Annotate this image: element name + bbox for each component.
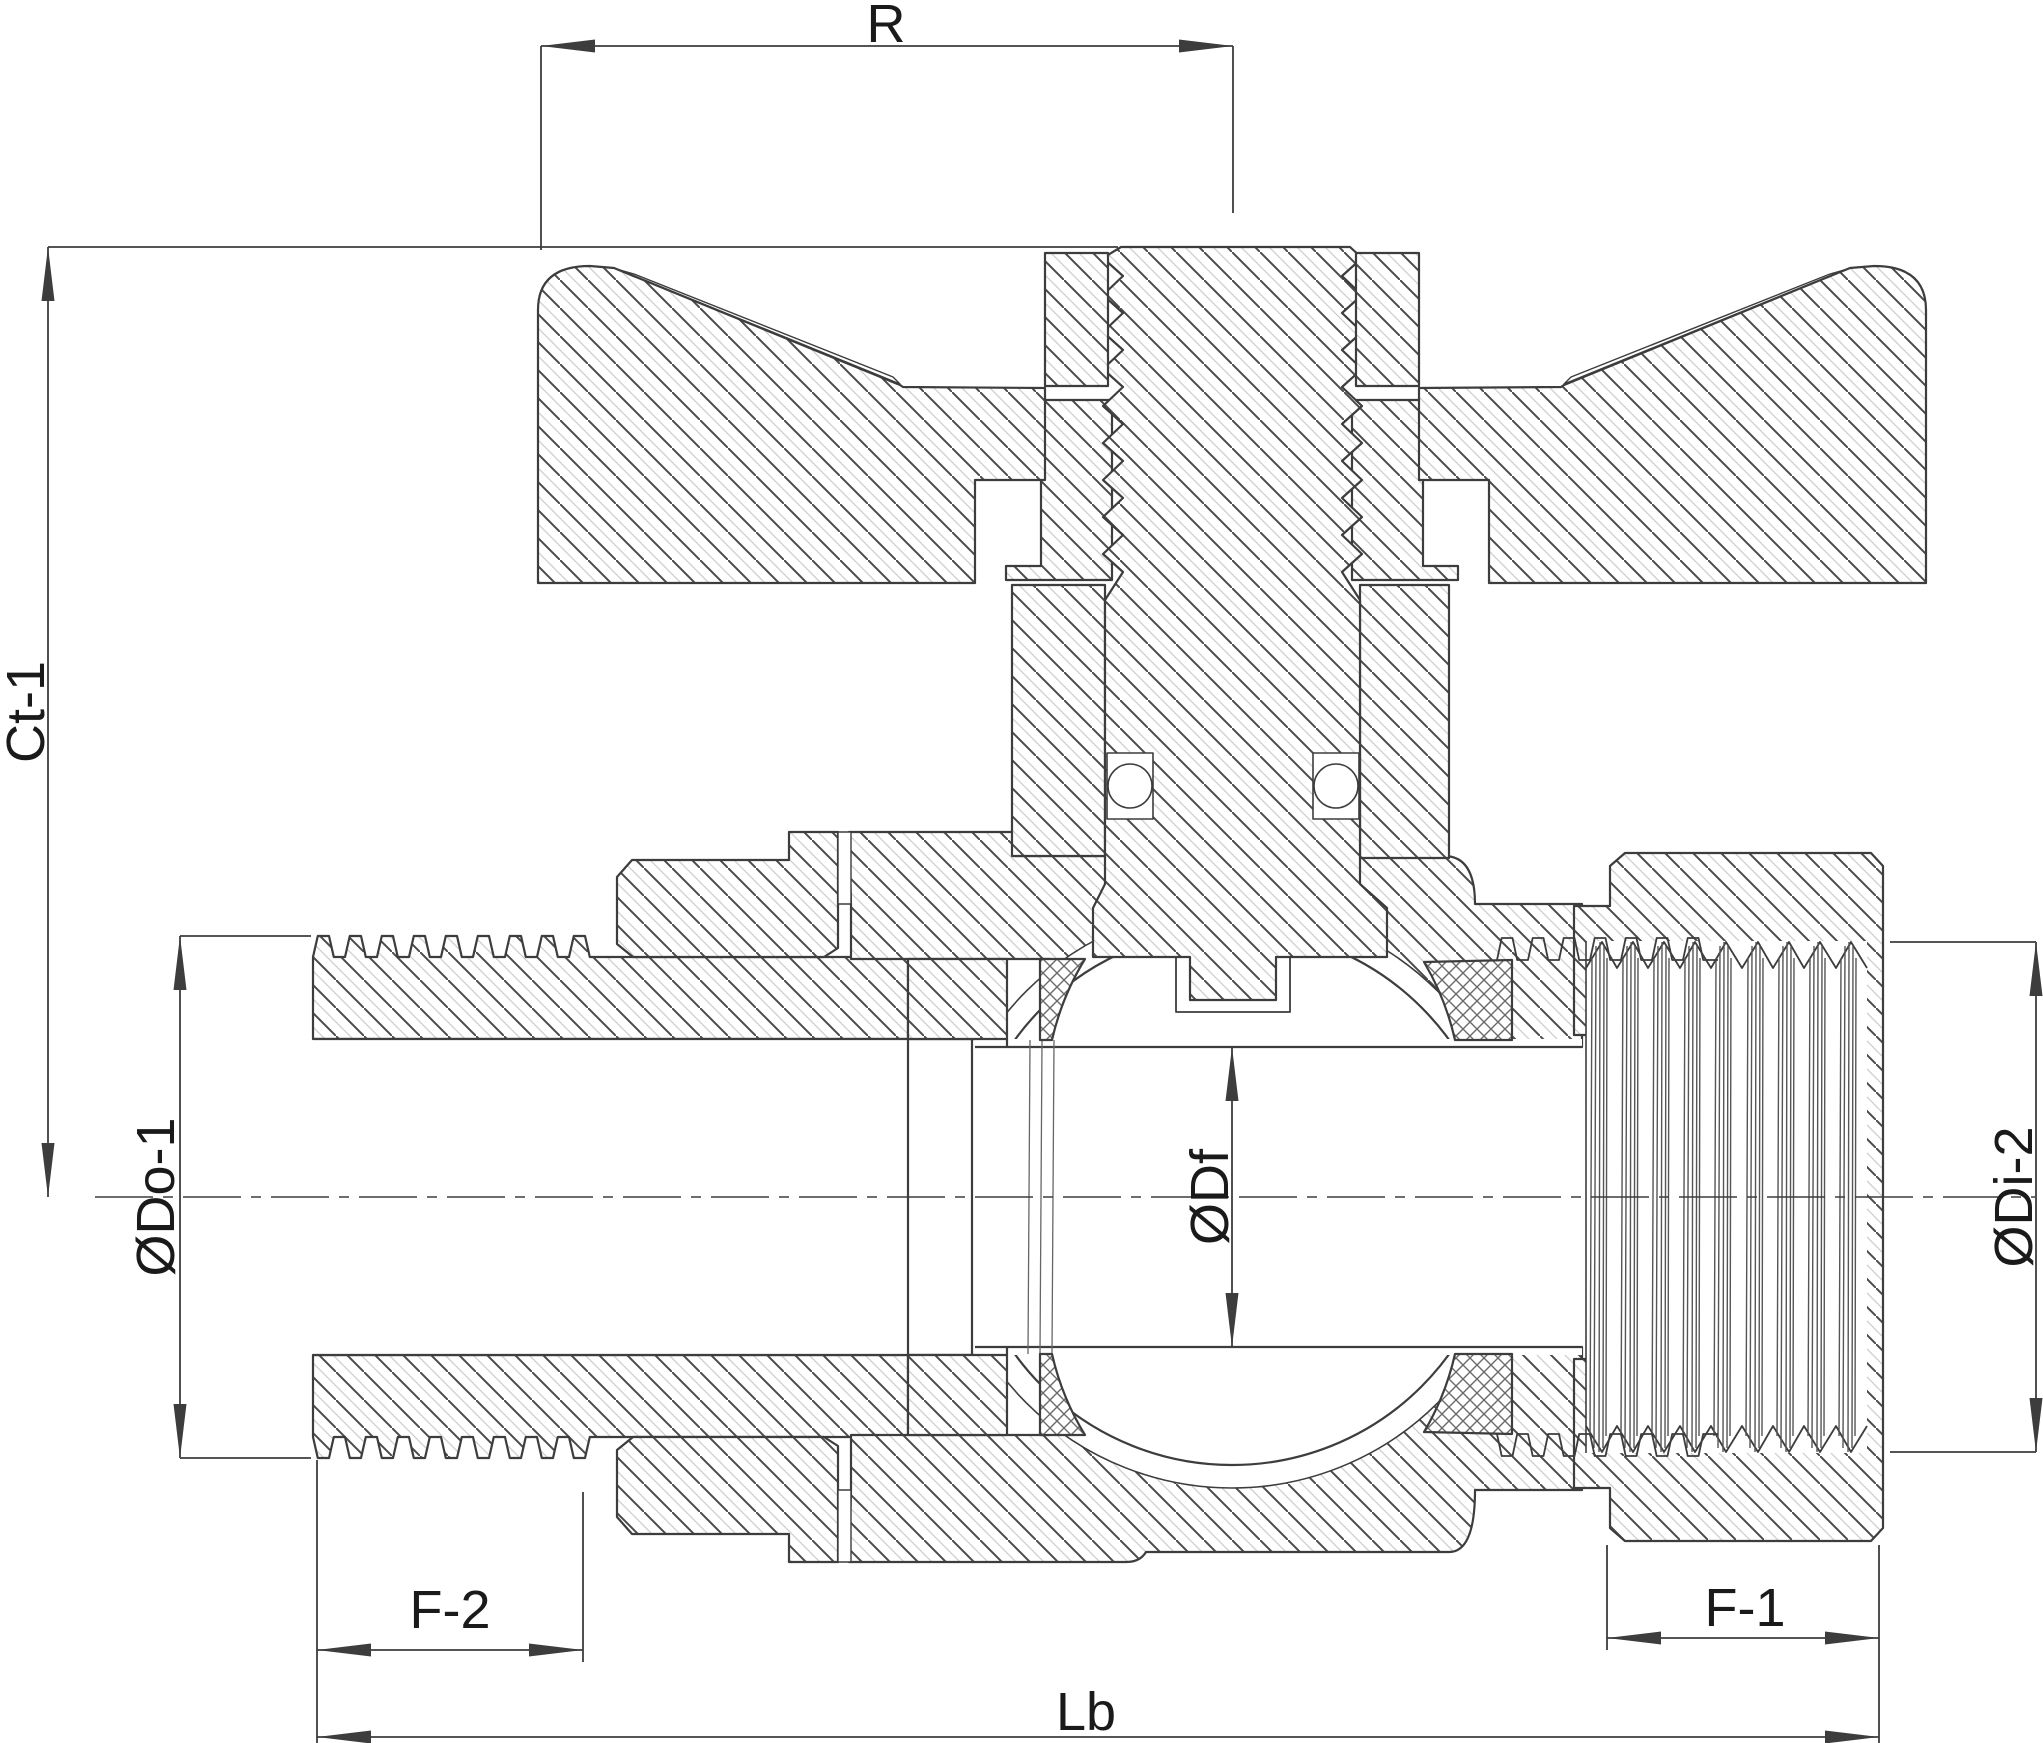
svg-text:ØDf: ØDf (1180, 1148, 1240, 1245)
svg-text:F-2: F-2 (410, 1580, 491, 1640)
svg-text:F-1: F-1 (1705, 1578, 1786, 1638)
svg-text:ØDo-1: ØDo-1 (126, 1117, 186, 1276)
svg-text:R: R (867, 0, 906, 54)
svg-text:Lb: Lb (1056, 1682, 1116, 1742)
svg-text:ØDi-2: ØDi-2 (1984, 1126, 2043, 1267)
svg-text:Ct-1: Ct-1 (0, 661, 56, 763)
